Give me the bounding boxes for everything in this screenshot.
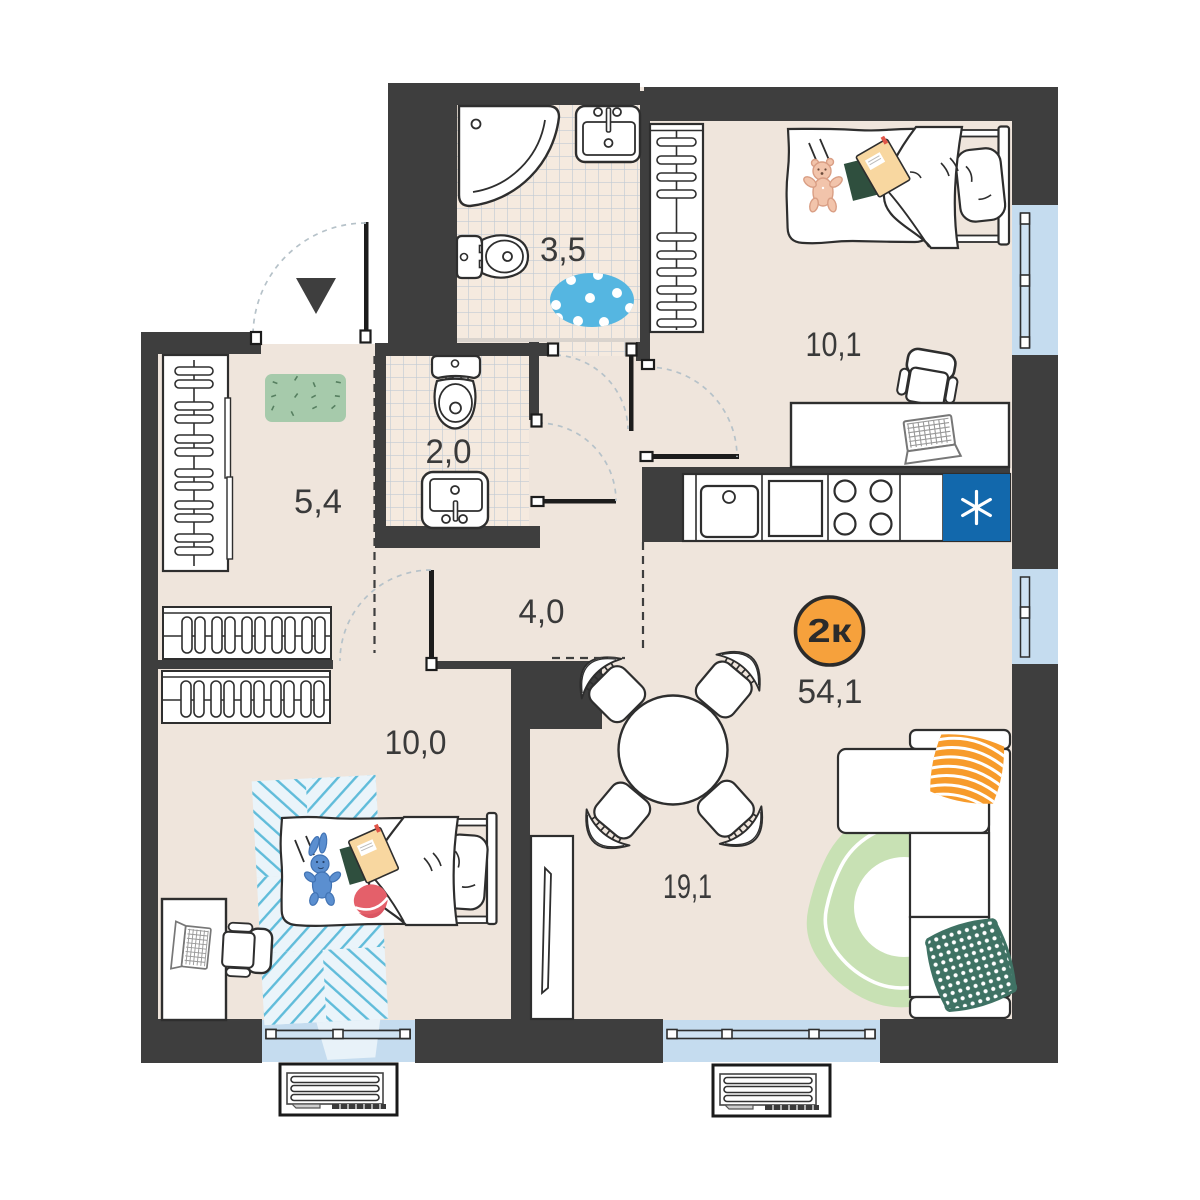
svg-text:19,1: 19,1: [663, 868, 712, 906]
svg-text:4,0: 4,0: [519, 593, 565, 631]
svg-text:3,5: 3,5: [540, 231, 586, 269]
svg-text:2к: 2к: [808, 612, 853, 649]
svg-text:10,1: 10,1: [806, 326, 862, 364]
svg-text:54,1: 54,1: [798, 673, 863, 711]
svg-text:5,4: 5,4: [294, 483, 342, 521]
svg-text:10,0: 10,0: [385, 724, 447, 762]
svg-text:2,0: 2,0: [426, 433, 472, 471]
